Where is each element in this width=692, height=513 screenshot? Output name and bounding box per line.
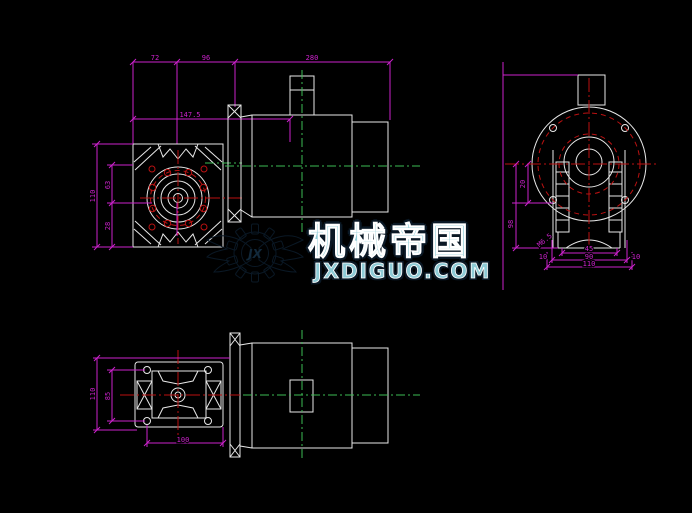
dim-110-rear: 110 xyxy=(583,260,596,268)
cad-canvas: 72 96 280 147.5 xyxy=(0,0,692,513)
top-dimension-chain: 72 96 280 147.5 xyxy=(130,54,393,144)
dim-85: 85 xyxy=(104,392,112,400)
dim-thread-callout: M6.5 xyxy=(536,232,554,249)
mounting-hole xyxy=(205,367,212,374)
dim-20: 20 xyxy=(519,180,527,188)
side-view-centerlines xyxy=(225,70,420,232)
mounting-hole xyxy=(205,418,212,425)
plan-view-centerlines xyxy=(120,330,420,458)
dim-147-5: 147.5 xyxy=(179,111,200,119)
dim-63: 63 xyxy=(104,181,112,189)
dim-280: 280 xyxy=(306,54,319,62)
rear-view-dimensions: 20 98 45 90 10 10 110 M6.5 xyxy=(503,62,640,290)
front-view: 110 63 28 xyxy=(89,141,242,250)
front-view-centerlines xyxy=(140,150,242,244)
dim-110-front: 110 xyxy=(89,190,97,203)
dim-96: 96 xyxy=(202,54,210,62)
junction-box-rear xyxy=(578,75,605,105)
fan-shroud xyxy=(352,122,388,212)
dim-side-right: 10 xyxy=(632,253,640,261)
dim-side-left: 10 xyxy=(539,253,547,261)
dim-98: 98 xyxy=(507,220,515,228)
plan-view: 110 85 100 xyxy=(89,330,420,458)
dim-110-plan: 110 xyxy=(89,388,97,401)
plan-view-dimensions: 110 85 100 xyxy=(89,355,230,447)
rear-view: 20 98 45 90 10 10 110 M6.5 xyxy=(503,62,658,290)
side-view xyxy=(225,70,420,232)
dim-72: 72 xyxy=(151,54,159,62)
drawing: 72 96 280 147.5 xyxy=(0,0,692,513)
dim-100: 100 xyxy=(177,436,190,444)
dim-28: 28 xyxy=(104,222,112,230)
dim-45: 45 xyxy=(585,245,593,253)
